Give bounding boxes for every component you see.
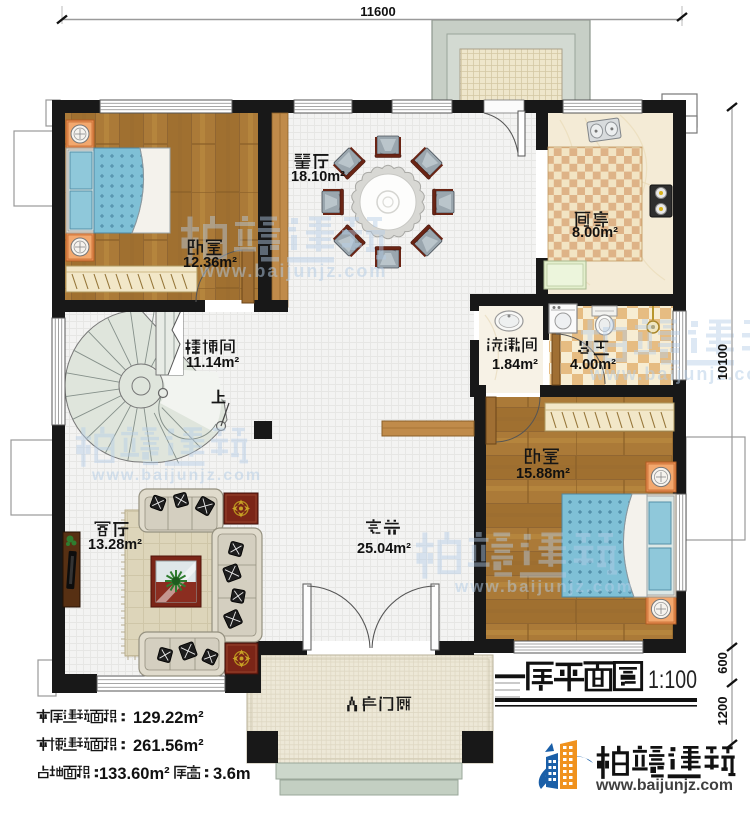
svg-text:www.baijunjz.com: www.baijunjz.com	[595, 777, 733, 794]
svg-text:133.60m²: 133.60m²	[99, 765, 170, 783]
svg-text:1200: 1200	[715, 697, 730, 726]
svg-text:4.00m²: 4.00m²	[570, 357, 616, 373]
svg-text:13.28m²: 13.28m²	[88, 537, 142, 553]
svg-text:15.88m²: 15.88m²	[516, 466, 570, 482]
svg-text:261.56m²: 261.56m²	[133, 737, 204, 755]
svg-text:11.14m²: 11.14m²	[186, 355, 239, 371]
svg-text:18.10m²: 18.10m²	[291, 169, 345, 185]
svg-text:www.baijunjz.com: www.baijunjz.com	[91, 467, 262, 484]
svg-text:1.84m²: 1.84m²	[492, 357, 538, 373]
svg-text:3.6m: 3.6m	[213, 765, 251, 783]
svg-text:600: 600	[715, 652, 730, 674]
svg-text:129.22m²: 129.22m²	[133, 709, 204, 727]
svg-text:www.baijunjz.com: www.baijunjz.com	[454, 577, 634, 596]
svg-text:1:100: 1:100	[648, 666, 697, 694]
svg-text:12.36m²: 12.36m²	[183, 255, 237, 271]
svg-text:10100: 10100	[715, 344, 730, 380]
svg-text:25.04m²: 25.04m²	[357, 541, 411, 557]
svg-text:11600: 11600	[360, 4, 395, 19]
svg-text:8.00m²: 8.00m²	[572, 225, 618, 241]
